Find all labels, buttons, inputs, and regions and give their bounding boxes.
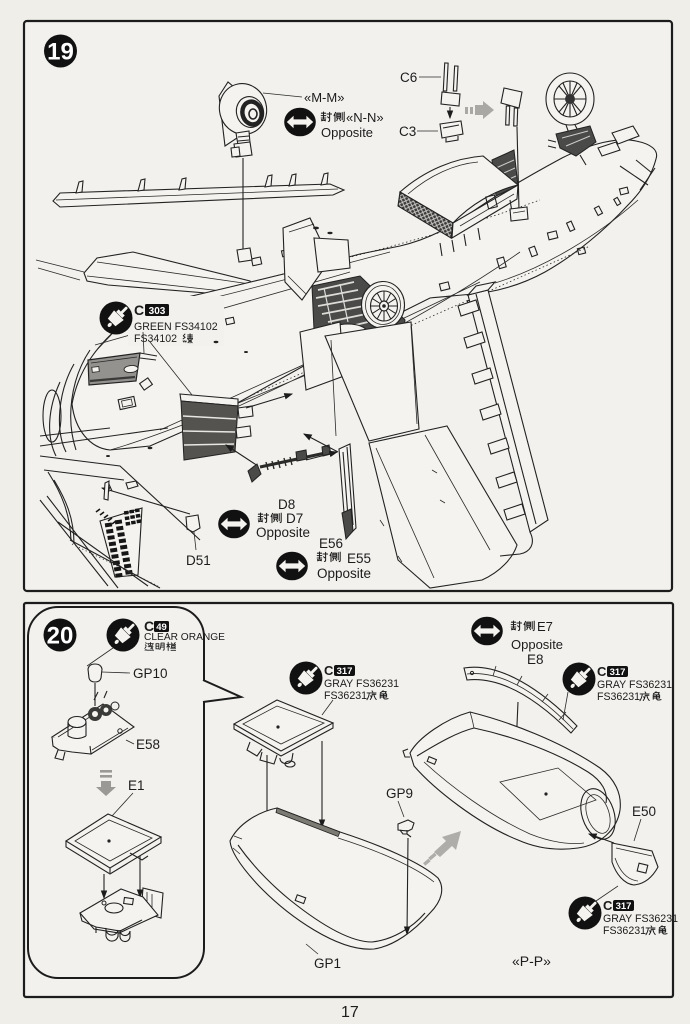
- svg-text:303: 303: [149, 306, 166, 317]
- svg-text:C: C: [603, 898, 613, 913]
- svg-text:C: C: [134, 302, 144, 318]
- svg-text:Opposite: Opposite: [321, 125, 373, 140]
- svg-text:E55: E55: [347, 551, 371, 566]
- svg-text:FS36231: FS36231: [597, 691, 640, 703]
- svg-text:GRAY FS36231: GRAY FS36231: [603, 913, 678, 925]
- svg-text:D8: D8: [278, 497, 295, 512]
- svg-text:317: 317: [616, 901, 632, 912]
- svg-text:FS36231: FS36231: [603, 925, 646, 937]
- svg-text:19: 19: [47, 39, 74, 66]
- svg-text:GREEN FS34102: GREEN FS34102: [134, 321, 218, 333]
- svg-text:FS34102: FS34102: [134, 333, 177, 345]
- svg-text:Opposite: Opposite: [317, 566, 371, 581]
- svg-text:317: 317: [337, 666, 353, 677]
- svg-text:«M-M»: «M-M»: [304, 90, 344, 105]
- svg-text:E58: E58: [136, 737, 160, 752]
- svg-text:GRAY FS36231: GRAY FS36231: [597, 679, 672, 691]
- svg-text:317: 317: [610, 667, 626, 678]
- svg-text:GP9: GP9: [386, 786, 413, 801]
- svg-text:C3: C3: [399, 124, 416, 139]
- svg-text:«P-P»: «P-P»: [512, 953, 551, 969]
- svg-text:E8: E8: [527, 652, 544, 667]
- svg-text:E1: E1: [128, 778, 145, 793]
- svg-text:E50: E50: [632, 804, 656, 819]
- svg-text:C6: C6: [400, 70, 417, 85]
- svg-text:GP10: GP10: [133, 666, 168, 681]
- svg-text:20: 20: [47, 623, 74, 650]
- svg-text:CLEAR ORANGE: CLEAR ORANGE: [144, 632, 225, 643]
- svg-text:Opposite: Opposite: [256, 525, 310, 540]
- svg-text:C: C: [324, 663, 334, 678]
- svg-text:E56: E56: [319, 536, 343, 551]
- svg-text:D7: D7: [286, 511, 303, 526]
- svg-text:17: 17: [341, 1004, 359, 1021]
- svg-text:GRAY FS36231: GRAY FS36231: [324, 678, 399, 690]
- svg-text:C: C: [597, 664, 607, 679]
- svg-text:«N-N»: «N-N»: [346, 110, 384, 125]
- svg-text:D51: D51: [186, 553, 211, 568]
- svg-text:E7: E7: [537, 619, 553, 634]
- svg-text:Opposite: Opposite: [511, 637, 563, 652]
- svg-text:FS36231: FS36231: [324, 690, 367, 702]
- svg-text:GP1: GP1: [314, 956, 341, 971]
